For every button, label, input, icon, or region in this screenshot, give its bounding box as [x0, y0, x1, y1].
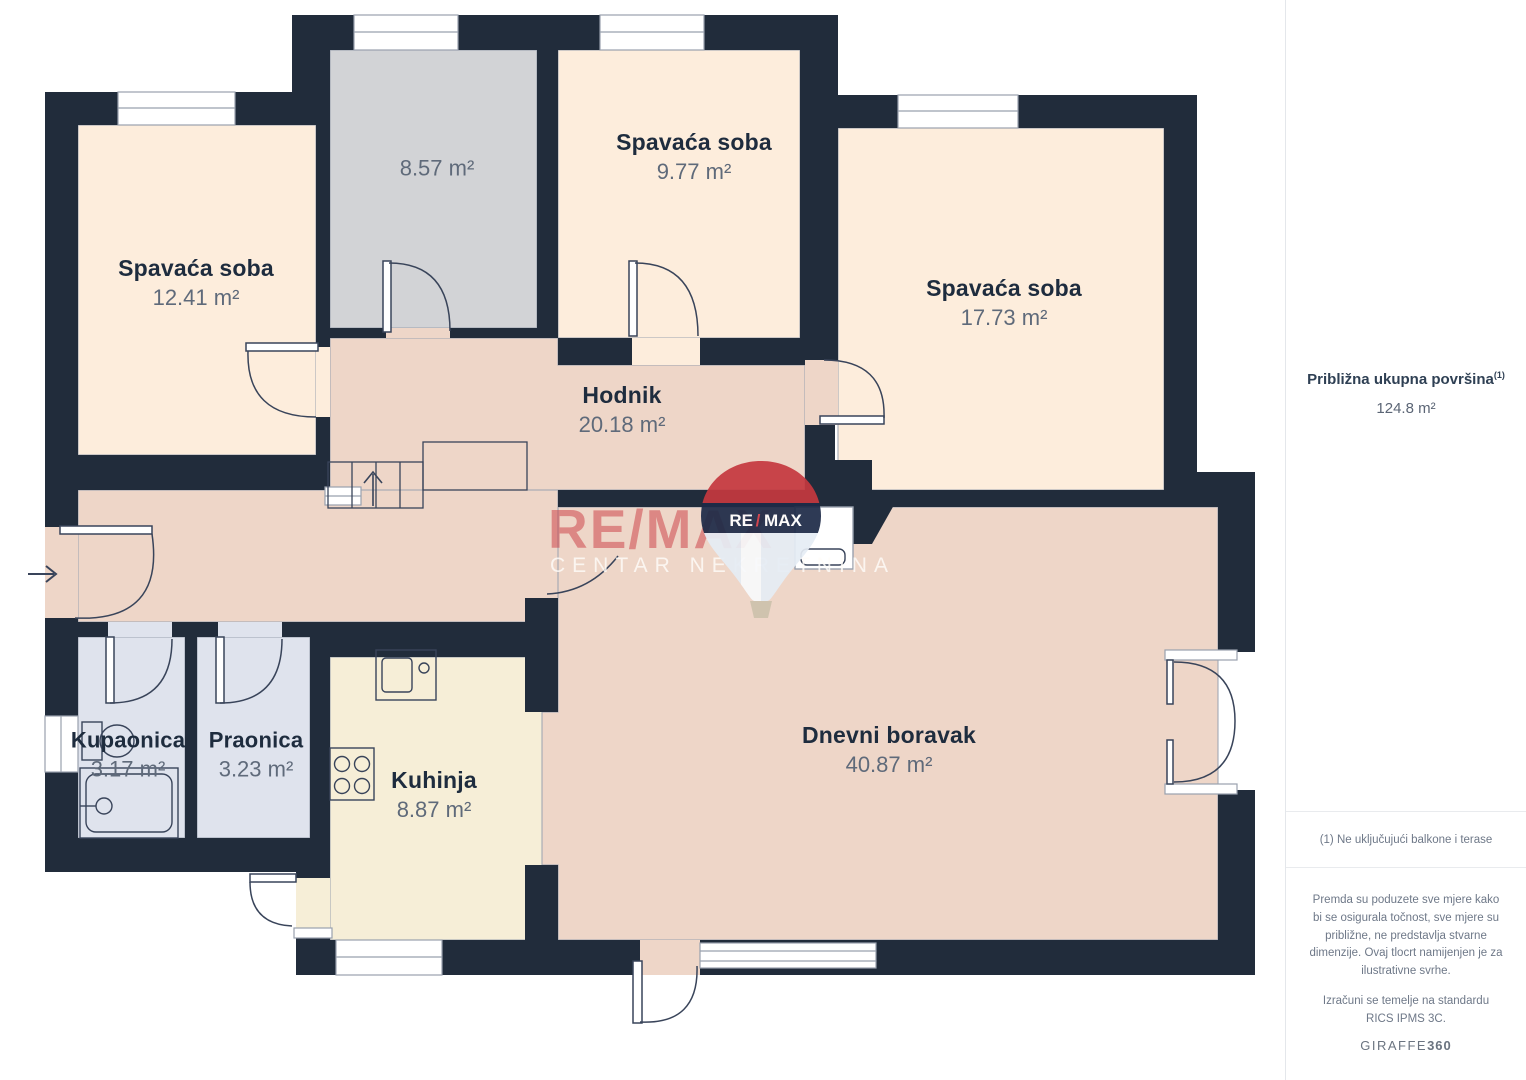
door-sill	[1165, 784, 1237, 794]
window	[898, 95, 1018, 128]
window	[600, 15, 704, 50]
total-area-label: Približna ukupna površina(1)	[1300, 370, 1512, 388]
standard-text: Izračuni se temelje na standardu RICS IP…	[1286, 993, 1526, 1029]
balloon-text-re: RE	[729, 511, 753, 530]
window	[45, 716, 78, 772]
footnote-marker: (1)	[1494, 370, 1505, 380]
floorplan-drawing: RE/MAX CENTAR NEKRETNINA RE / MAX	[0, 0, 1285, 1080]
room-bathroom	[78, 637, 185, 838]
room-bedroom-1	[78, 125, 316, 455]
giraffe360-logo: GIRAFFE360	[1286, 1038, 1526, 1053]
floorplan-canvas: RE/MAX CENTAR NEKRETNINA RE / MAX Spavać	[0, 0, 1285, 1080]
divider	[1286, 811, 1526, 812]
room-laundry	[197, 637, 310, 838]
door-kitchen-exterior	[250, 874, 296, 926]
floorplan-page: RE/MAX CENTAR NEKRETNINA RE / MAX Spavać	[0, 0, 1526, 1080]
total-area-block: Približna ukupna površina(1) 124.8 m²	[1286, 370, 1526, 417]
room-hallway-entry	[78, 490, 558, 622]
balloon-text-slash: /	[756, 511, 761, 530]
total-area-value: 124.8 m²	[1300, 400, 1512, 417]
info-sidebar: Približna ukupna površina(1) 124.8 m² (1…	[1285, 0, 1526, 1080]
window	[700, 943, 876, 968]
room-bedroom-3	[838, 128, 1164, 490]
divider	[1286, 867, 1526, 868]
window	[118, 92, 235, 125]
door-sill	[1165, 650, 1237, 660]
balloon-text-max: MAX	[764, 511, 802, 530]
door-sill	[294, 928, 332, 938]
footnote-text: (1) Ne uključujući balkone i terase	[1286, 832, 1526, 850]
disclaimer-text: Premda su poduzete sve mjere kako bi se …	[1286, 892, 1526, 981]
room-storage	[330, 50, 537, 328]
room-bedroom-2	[558, 50, 800, 338]
window-sill	[325, 487, 361, 505]
window	[336, 940, 442, 975]
window	[354, 15, 458, 50]
